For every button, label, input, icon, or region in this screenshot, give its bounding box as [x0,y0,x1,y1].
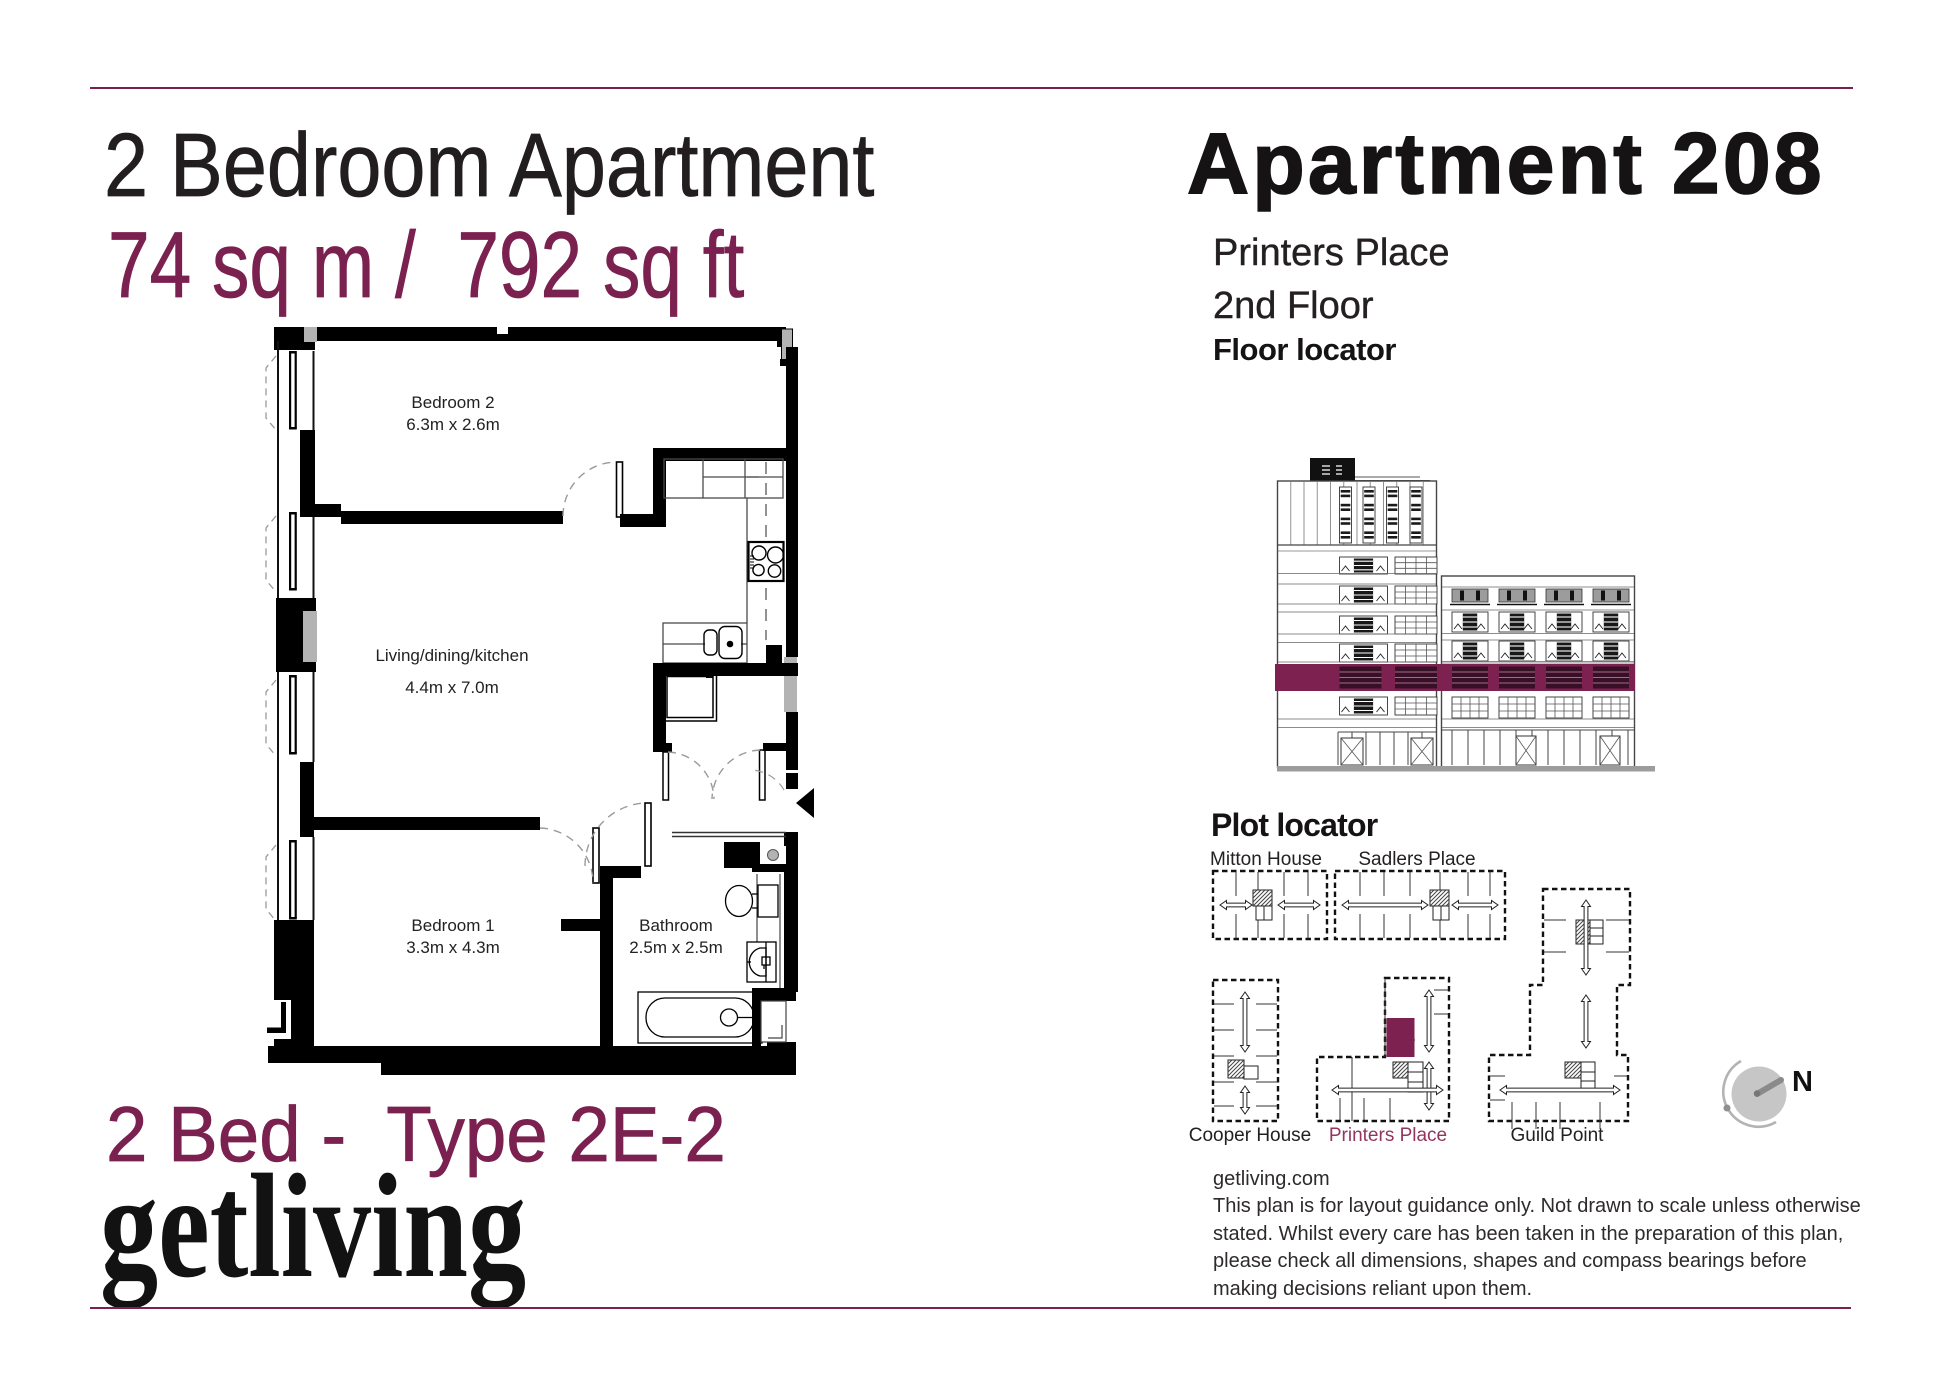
svg-text:3.3m x 4.3m: 3.3m x 4.3m [406,938,500,957]
svg-text:4.4m x 7.0m: 4.4m x 7.0m [405,678,499,697]
svg-text:Bedroom 2: Bedroom 2 [411,393,494,412]
svg-text:2.5m x 2.5m: 2.5m x 2.5m [629,938,723,957]
svg-text:Bathroom: Bathroom [639,916,713,935]
svg-text:6.3m x 2.6m: 6.3m x 2.6m [406,415,500,434]
svg-text:Bedroom 1: Bedroom 1 [411,916,494,935]
svg-text:Living/dining/kitchen: Living/dining/kitchen [375,646,528,665]
